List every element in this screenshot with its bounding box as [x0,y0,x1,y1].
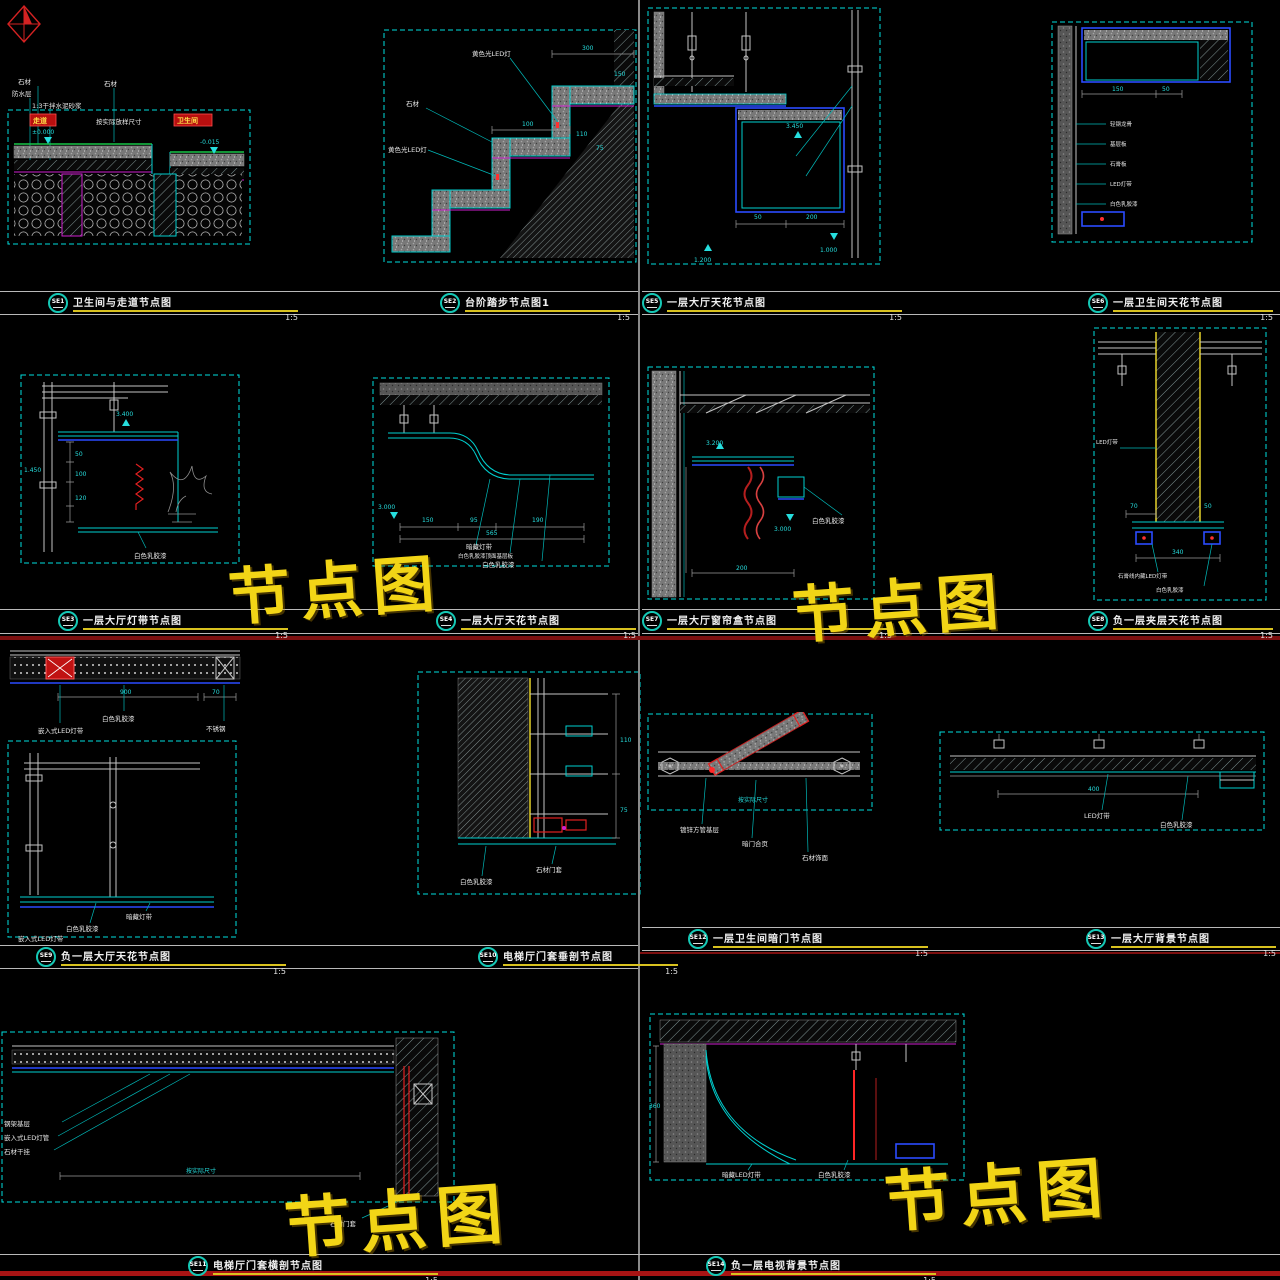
dim-200: 200 [806,214,818,221]
label-stone: 石材 [18,77,32,86]
dim-190: 190 [532,517,544,524]
title-block: 一层卫生间暗门节点图1:5 [713,929,928,958]
title-underline [73,310,298,312]
level-3200: 3.200 [706,440,723,447]
label-white-paint: 白色乳胶漆 [482,560,515,569]
watermark-jiediantu-2: 节点图 [789,551,1011,656]
title-block: 负一层大厅天花节点图1:5 [61,947,286,976]
tag-corridor: 走道 [33,116,47,125]
detail-drawing-se1: 石材 防水层 1:3干拌水泥砂浆 石材 走道 卫生间 按实际放样尺寸 ±0.00… [4,74,254,249]
detail-title-text: 一层卫生间天花节点图 [1113,294,1273,309]
detail-ref-id: SE9 [40,953,53,959]
title-block: 负一层电视背景节点图1:5 [731,1256,936,1280]
bubble-divider [63,625,73,626]
note-hinge: 暗门合页 [742,839,769,848]
note-stone-finish: 石材饰面 [802,853,829,862]
geometry [648,8,880,264]
detail-scale: 1:5 [1113,631,1273,640]
dim-1450: 1.450 [24,467,41,474]
detail-drawing-se13: 400 LED灯带 白色乳胶漆 [938,726,1270,862]
dim-75: 75 [596,145,604,152]
dim-50: 50 [1162,86,1170,93]
label-stone-2: 石材 [104,79,118,88]
detail-scale: 1:5 [465,313,630,322]
detail-drawing-se12: 按实际尺寸 镀锌方管基层 暗门合页 石材饰面 [646,712,878,882]
label-white-paint: 白色乳胶漆 [1160,820,1193,829]
title-underline [465,310,630,312]
detail-ref-bubble: SE14 [706,1256,726,1276]
detail-title-se10: SE10 电梯厅门套垂剖节点图1:5 [478,947,678,976]
detail-ref-id: SE10 [480,953,497,959]
detail-title-text: 一层卫生间暗门节点图 [713,930,928,945]
detail-drawing-se8: 70 50 340 LED灯带 石膏线内藏LED灯带 白色乳胶漆 [1092,326,1270,604]
note-keel: 轻钢龙骨 [1110,120,1133,128]
title-block: 一层卫生间天花节点图1:5 [1113,293,1273,322]
title-rule [642,927,1280,928]
title-block: 一层大厅天花节点图1:5 [667,293,902,322]
bubble-divider [1093,625,1103,626]
bubble-divider [483,961,493,962]
dim-70: 70 [1130,503,1138,510]
title-block: 电梯厅门套垂剖节点图1:5 [503,947,678,976]
label-waterproof: 防水层 [12,89,32,98]
detail-title-text: 负一层夹层天花节点图 [1113,612,1273,627]
level-3000: 3.000 [378,504,395,511]
detail-title-text: 一层大厅天花节点图 [461,612,636,627]
title-underline [213,1273,438,1275]
level-3000: 3.000 [774,526,791,533]
label-hidden-led: 暗藏LED灯带 [722,1170,761,1179]
dim-200: 200 [736,565,748,572]
detail-ref-id: SE13 [1088,935,1105,941]
label-white-paint: 白色乳胶漆 [812,516,845,525]
bubble-divider [53,307,63,308]
title-rule [0,1254,1280,1255]
detail-scale: 1:5 [1111,949,1276,958]
bubble-divider [445,307,455,308]
title-underline [1113,310,1273,312]
geometry [21,375,239,563]
bubble-divider [647,307,657,308]
detail-scale: 1:5 [213,1276,438,1280]
detail-ref-bubble: SE11 [188,1256,208,1276]
title-rule [0,945,638,946]
note-baseboard: 基层板 [1110,140,1127,148]
dim-110: 110 [576,131,588,138]
dim-fit: 按实际尺寸 [738,796,768,804]
detail-drawing-se9: 900 70 嵌入式LED灯带 白色乳胶漆 不锈钢 暗藏灯带 白色乳胶漆 嵌入式… [0,645,248,943]
label-hidden-led: 暗藏灯带 [466,542,493,551]
label-white-paint-2: 白色乳胶漆 [66,924,99,933]
title-underline [461,628,636,630]
detail-title-text: 一层大厅天花节点图 [667,294,902,309]
detail-ref-bubble: SE8 [1088,611,1108,631]
bubble-divider [441,625,451,626]
label-white-paint: 白色乳胶漆 [1156,586,1184,594]
detail-title-se12: SE12 一层卫生间暗门节点图1:5 [688,929,928,958]
watermark-jiediantu-3: 节点图 [281,1160,515,1272]
detail-title-text: 台阶踏步节点图1 [465,294,630,309]
label-recessed-led: 嵌入式LED灯带 [38,726,84,735]
dim-70: 70 [212,689,220,696]
title-underline [1111,946,1276,948]
title-rule [0,291,638,292]
detail-ref-bubble: SE7 [642,611,662,631]
dim-95: 95 [470,517,478,524]
bubble-divider [693,943,703,944]
label-led-tube: 嵌入式LED灯管 [4,1133,50,1142]
detail-title-se14: SE14 负一层电视背景节点图1:5 [706,1256,936,1280]
bubble-divider [193,1270,203,1271]
detail-title-text: 负一层大厅天花节点图 [61,948,286,963]
bubble-divider [1091,943,1101,944]
label-stone: 石材 [406,99,420,108]
detail-ref-id: SE5 [646,299,659,305]
level-3400: 3.400 [116,411,133,418]
title-block: 一层大厅天花节点图1:5 [461,611,636,640]
geometry [1094,328,1266,600]
label-yellow-led: 黄色光LED灯 [472,49,511,58]
cad-sheet: 石材 防水层 1:3干拌水泥砂浆 石材 走道 卫生间 按实际放样尺寸 ±0.00… [0,0,1280,1280]
geometry [418,672,640,894]
title-underline [731,1273,936,1275]
detail-drawing-se3: 3.400 1.450 50 100 120 白色乳胶漆 [18,372,244,568]
label-led-strip: LED灯带 [1084,811,1110,820]
detail-ref-id: SE12 [690,935,707,941]
title-rule [642,291,1280,292]
detail-title-se8: SE8 负一层夹层天花节点图1:5 [1088,611,1273,640]
detail-title-text: 一层大厅背景节点图 [1111,930,1276,945]
level-1200: 1.200 [694,257,711,264]
detail-ref-id: SE14 [708,1262,725,1268]
title-underline [713,946,928,948]
detail-title-text: 卫生间与走道节点图 [73,294,298,309]
detail-drawing-se2: 黄色光LED灯 黄色光LED灯 石材 300 150 100 110 75 [382,26,640,266]
label-paint-base: 白色乳胶漆顶面基层板 [458,552,514,560]
bubble-divider [647,625,657,626]
detail-title-text: 负一层电视背景节点图 [731,1257,936,1272]
detail-ref-bubble: SE9 [36,947,56,967]
geometry [8,6,40,42]
detail-ref-bubble: SE2 [440,293,460,313]
label-recessed-led-2: 嵌入式LED灯带 [18,934,64,943]
tag-bathroom: 卫生间 [177,116,198,125]
dim-fit: 按实际尺寸 [186,1167,216,1175]
title-underline [61,964,286,966]
dim-100: 100 [522,121,534,128]
dim-150: 150 [422,517,434,524]
detail-drawing-se10: 110 75 石材门套 白色乳胶漆 [416,670,644,900]
label-mortar: 1:3干拌水泥砂浆 [32,101,82,110]
detail-ref-bubble: SE1 [48,293,68,313]
detail-title-se1: SE1 卫生间与走道节点图1:5 [48,293,298,322]
dim-50: 50 [75,451,83,458]
detail-title-se5: SE5 一层大厅天花节点图1:5 [642,293,902,322]
detail-ref-bubble: SE3 [58,611,78,631]
detail-ref-id: SE11 [190,1262,207,1268]
label-white-paint: 白色乳胶漆 [818,1170,851,1179]
bubble-divider [1093,307,1103,308]
watermark-jiediantu-4: 节点图 [881,1134,1115,1246]
detail-ref-id: SE8 [1092,617,1105,623]
title-underline [667,310,902,312]
north-compass-icon [2,2,46,46]
bubble-divider [41,961,51,962]
detail-scale: 1:5 [731,1276,936,1280]
label-hidden-led: 暗藏灯带 [126,912,153,921]
detail-scale: 1:5 [503,967,678,976]
quadrant-divider-vertical [638,0,640,1280]
title-underline [1113,628,1273,630]
note-gypsum: 石膏板 [1110,160,1127,168]
dim-150: 150 [614,71,626,78]
dim-565: 565 [486,530,498,537]
title-block: 负一层夹层天花节点图1:5 [1113,611,1273,640]
detail-title-se4: SE4 一层大厅天花节点图1:5 [436,611,636,640]
label-white-paint: 白色乳胶漆 [460,877,493,886]
detail-drawing-se6: 150 50 轻钢龙骨 基层板 石膏板 LED灯带 白色乳胶漆 [1050,20,1256,246]
detail-ref-bubble: SE13 [1086,929,1106,949]
dim-110: 110 [620,737,632,744]
label-stainless: 不锈钢 [206,724,226,733]
label-stone-frame: 石材门套 [536,865,563,874]
dim-360: 360 [649,1103,661,1110]
detail-title-text: 电梯厅门套垂剖节点图 [503,948,678,963]
title-block: 一层大厅背景节点图1:5 [1111,929,1276,958]
detail-scale: 1:5 [667,313,902,322]
label-gypsum-led: 石膏线内藏LED灯带 [1118,572,1168,580]
detail-title-se13: SE13 一层大厅背景节点图1:5 [1086,929,1276,958]
label-fit-dimension: 按实际放样尺寸 [96,117,142,126]
detail-ref-id: SE7 [646,617,659,623]
dim-120: 120 [75,495,87,502]
detail-title-se9: SE9 负一层大厅天花节点图1:5 [36,947,286,976]
detail-ref-bubble: SE6 [1088,293,1108,313]
level-minus: -0.015 [200,139,220,146]
detail-ref-bubble: SE10 [478,947,498,967]
label-white-paint: 白色乳胶漆 [102,714,135,723]
level-3450: 3.450 [786,123,803,130]
dim-50: 50 [754,214,762,221]
geometry [1052,22,1252,242]
detail-ref-bubble: SE5 [642,293,662,313]
title-block: 台阶踏步节点图11:5 [465,293,630,322]
note-led: LED灯带 [1110,180,1132,188]
title-block: 卫生间与走道节点图1:5 [73,293,298,322]
note-tube-base: 镀锌方管基层 [680,825,720,834]
dim-75: 75 [620,807,628,814]
label-stone-hang: 石材干挂 [4,1147,31,1156]
detail-scale: 1:5 [61,967,286,976]
dim-900: 900 [120,689,132,696]
detail-scale: 1:5 [713,949,928,958]
detail-title-se2: SE2 台阶踏步节点图11:5 [440,293,630,322]
dim-50: 50 [1204,503,1212,510]
label-steel-base: 钢架基层 [4,1119,31,1128]
detail-ref-id: SE3 [62,617,75,623]
detail-ref-bubble: SE12 [688,929,708,949]
watermark-jiediantu-1: 节点图 [225,533,447,638]
label-led-strip: LED灯带 [1096,438,1118,446]
level-1000: 1.000 [820,247,837,254]
level-zero: ±0.000 [32,129,54,136]
note-paint: 白色乳胶漆 [1110,200,1138,208]
dim-400: 400 [1088,786,1100,793]
detail-scale: 1:5 [73,313,298,322]
dim-340: 340 [1172,549,1184,556]
label-white-paint: 白色乳胶漆 [134,551,167,560]
detail-title-se6: SE6 一层卫生间天花节点图1:5 [1088,293,1273,322]
detail-scale: 1:5 [461,631,636,640]
dim-300: 300 [582,45,594,52]
detail-ref-id: SE2 [444,299,457,305]
detail-ref-id: SE6 [1092,299,1105,305]
title-underline [503,964,678,966]
detail-drawing-se5: 3.450 1.200 1.000 50 200 [646,6,908,268]
detail-ref-id: SE1 [52,299,65,305]
dim-150: 150 [1112,86,1124,93]
label-yellow-led-2: 黄色光LED灯 [388,145,427,154]
bubble-divider [711,1270,721,1271]
detail-scale: 1:5 [1113,313,1273,322]
dim-100: 100 [75,471,87,478]
